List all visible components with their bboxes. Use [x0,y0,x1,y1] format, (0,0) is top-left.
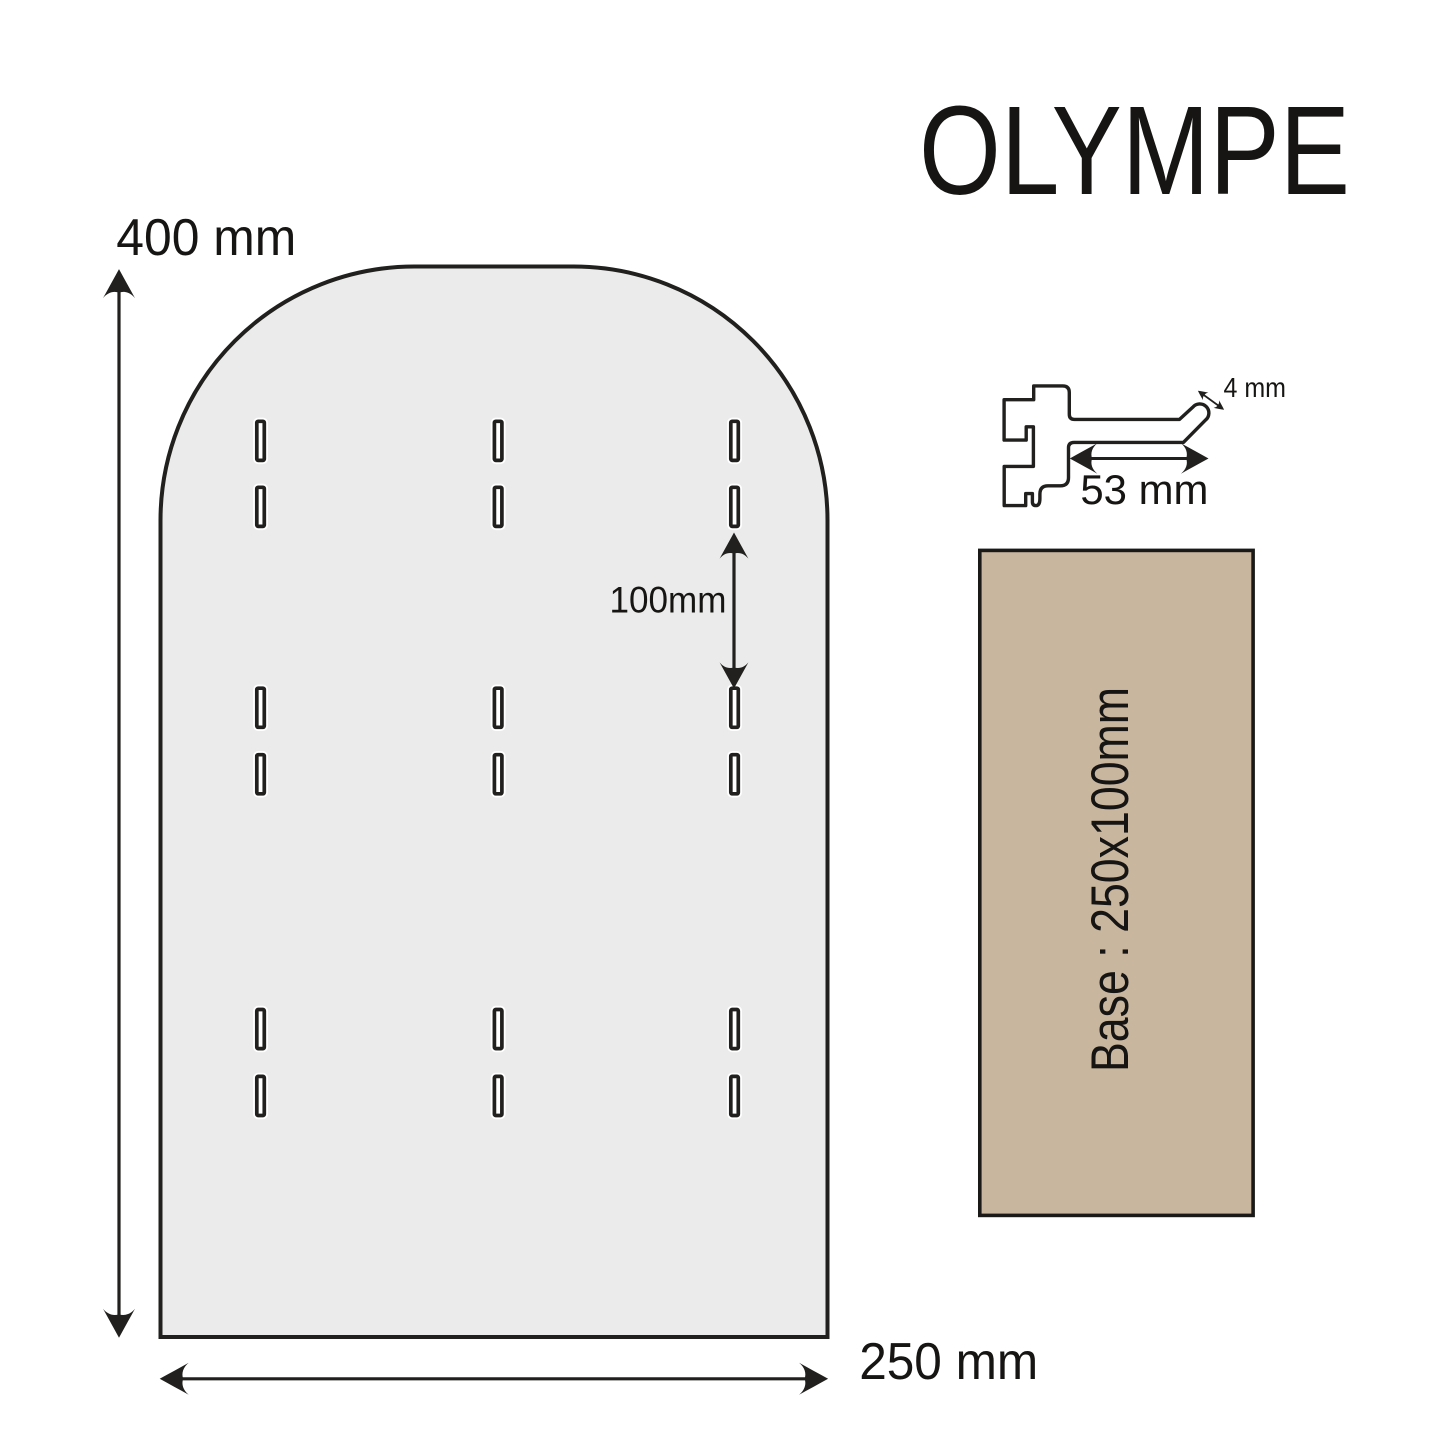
svg-text:4 mm: 4 mm [1224,372,1287,403]
svg-text:250 mm: 250 mm [859,1333,1038,1391]
svg-text:Base : 250x100mm: Base : 250x100mm [1081,687,1140,1072]
svg-text:100mm: 100mm [610,579,727,620]
svg-text:OLYMPE: OLYMPE [919,80,1350,221]
svg-text:53 mm: 53 mm [1080,466,1208,513]
svg-text:400 mm: 400 mm [116,209,296,267]
